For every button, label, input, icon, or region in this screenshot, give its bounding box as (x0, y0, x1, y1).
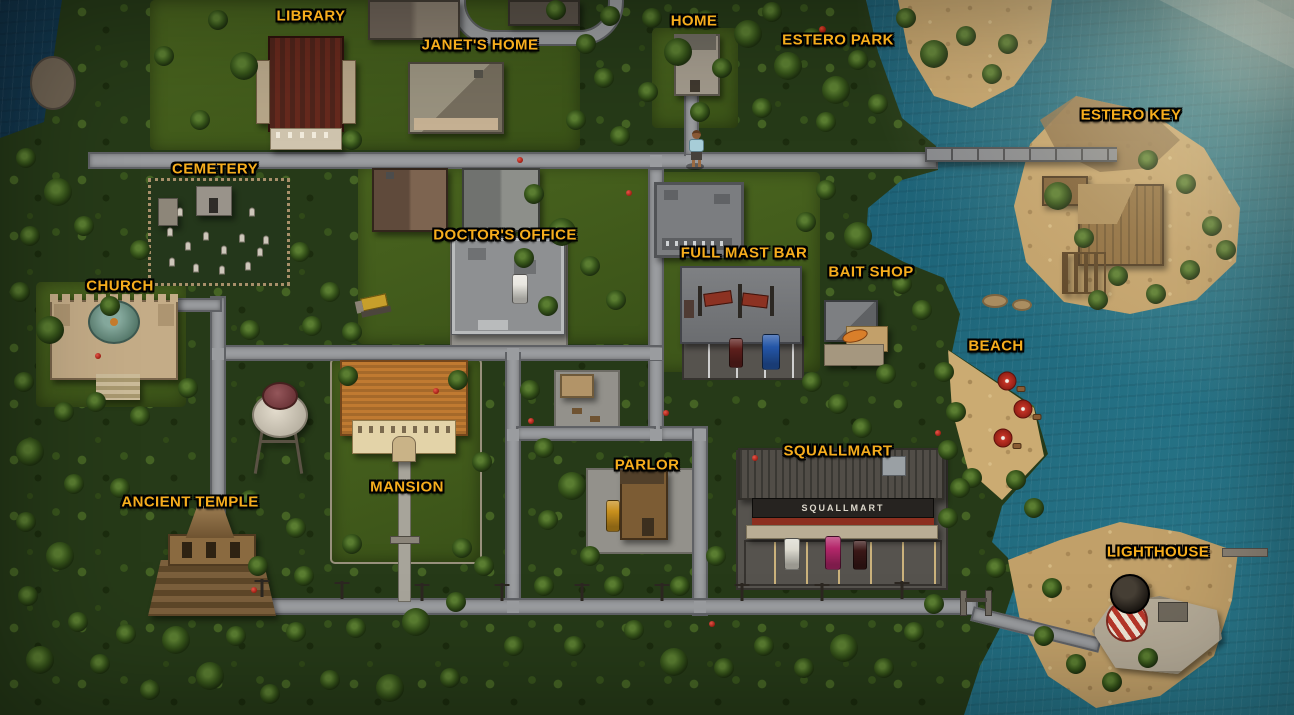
palm-tree (208, 10, 228, 30)
palm-tree (342, 322, 362, 342)
hibiscus-flower (626, 190, 632, 196)
hibiscus-flower (935, 430, 941, 436)
map-location-beach[interactable]: BEACH (968, 338, 1023, 355)
palm-tree (802, 372, 822, 392)
palm-tree (1088, 290, 1108, 310)
palm-tree (774, 52, 802, 80)
palm-tree (248, 556, 268, 576)
building-top-house-b[interactable] (508, 0, 580, 26)
palm-tree (260, 684, 280, 704)
palm-tree (546, 0, 566, 20)
palm-tree (16, 438, 44, 466)
player-marker (684, 130, 708, 172)
palm-tree (178, 378, 198, 398)
palm-tree (714, 658, 734, 678)
palm-tree (934, 362, 954, 382)
car-squallmart-pink (825, 536, 841, 570)
palm-tree (36, 316, 64, 344)
palm-tree (564, 636, 584, 656)
palm-tree (446, 592, 466, 612)
palm-tree (796, 212, 816, 232)
palm-tree (822, 76, 850, 104)
car-squallmart-white (784, 538, 800, 570)
palm-tree (896, 8, 916, 28)
map-location-church[interactable]: CHURCH (86, 278, 153, 295)
tombstone (203, 232, 209, 241)
palm-tree (116, 624, 136, 644)
power-pole (501, 583, 504, 601)
power-pole (261, 579, 264, 597)
map-location-doctors-office[interactable]: DOCTOR'S OFFICE (433, 227, 576, 244)
power-pole (741, 583, 744, 601)
palm-tree (912, 300, 932, 320)
center-avenue (505, 352, 521, 614)
building-squallmart[interactable]: SQUALLMART (738, 448, 944, 540)
palm-tree (1176, 174, 1196, 194)
palm-tree (90, 654, 110, 674)
palm-tree (46, 542, 74, 570)
palm-tree (538, 510, 558, 530)
power-pole (821, 583, 824, 601)
shore-rocks (30, 56, 76, 110)
palm-tree (514, 248, 534, 268)
palm-tree (876, 364, 896, 384)
palm-tree (1202, 216, 1222, 236)
tombstone (245, 262, 251, 271)
palm-tree (538, 296, 558, 316)
palm-tree (610, 126, 630, 146)
palm-tree (734, 20, 762, 48)
palm-tree (1102, 672, 1122, 692)
palm-tree (816, 112, 836, 132)
palm-tree (130, 240, 150, 260)
road-junction (212, 348, 224, 360)
picnic-table (590, 416, 600, 422)
tombstone (249, 208, 255, 217)
van-parlor-yellow (606, 500, 620, 532)
building-full-mast-bar[interactable] (680, 266, 802, 344)
palm-tree (600, 6, 620, 26)
palm-tree (848, 50, 868, 70)
picnic-table (572, 408, 582, 414)
palm-tree (1066, 654, 1086, 674)
palm-tree (1108, 266, 1128, 286)
mausoleum (196, 186, 232, 216)
tombstone (239, 234, 245, 243)
palm-tree (1006, 470, 1026, 490)
palm-tree (100, 296, 120, 316)
palm-tree (670, 576, 690, 596)
palm-tree (852, 418, 872, 438)
palm-tree (302, 316, 322, 336)
hibiscus-flower (433, 388, 439, 394)
beach-chair (1033, 414, 1042, 420)
palm-tree (690, 102, 710, 122)
palm-tree (130, 406, 150, 426)
palm-tree (576, 34, 596, 54)
palm-tree (376, 674, 404, 702)
pier (1222, 548, 1268, 557)
road-junction (507, 348, 519, 360)
palm-tree (642, 8, 662, 28)
beach-chair (1013, 443, 1022, 449)
palm-tree (26, 646, 54, 674)
palm-tree (286, 622, 306, 642)
palm-tree (1042, 578, 1062, 598)
hibiscus-flower (709, 621, 715, 627)
tombstone (219, 266, 225, 275)
tombstone (193, 264, 199, 273)
building-library[interactable] (256, 36, 356, 150)
map-location-ancient-temple[interactable]: ANCIENT TEMPLE (121, 494, 258, 511)
palm-tree (752, 98, 772, 118)
power-pole (581, 583, 584, 601)
hibiscus-flower (663, 410, 669, 416)
road-junction (507, 429, 519, 441)
map-location-bait-shop[interactable]: BAIT SHOP (828, 264, 913, 281)
power-pole (661, 583, 664, 601)
palm-tree (402, 608, 430, 636)
power-pole (341, 581, 344, 599)
palm-tree (294, 566, 314, 586)
car-doctors-office (512, 274, 528, 304)
palm-tree (346, 618, 366, 638)
beach-umbrella (998, 372, 1017, 391)
palm-tree (504, 636, 524, 656)
road-junction (694, 429, 706, 441)
hibiscus-flower (517, 157, 523, 163)
palm-tree (844, 222, 872, 250)
beach-umbrella (1014, 400, 1033, 419)
palm-tree (16, 512, 36, 532)
palm-tree (320, 670, 340, 690)
palm-tree (594, 68, 614, 88)
car-squallmart-dark (853, 540, 867, 570)
palm-tree (1024, 498, 1044, 518)
building-top-house-a[interactable] (368, 0, 460, 40)
palm-tree (868, 94, 888, 114)
palm-tree (64, 474, 84, 494)
palm-tree (638, 82, 658, 102)
palm-tree (68, 612, 88, 632)
palm-tree (946, 402, 966, 422)
squallmart-parking (744, 540, 942, 586)
palm-tree (982, 64, 1002, 84)
palm-tree (44, 178, 72, 206)
palm-tree (320, 282, 340, 302)
beach-umbrella (994, 429, 1013, 448)
map-location-estero-park[interactable]: ESTERO PARK (782, 32, 894, 49)
palm-tree (580, 546, 600, 566)
palm-tree (754, 636, 774, 656)
building-house-west[interactable] (372, 168, 448, 232)
palm-tree (706, 546, 726, 566)
squallmart-sign-text: SQUALLMART (802, 503, 885, 513)
palm-tree (664, 38, 692, 66)
palm-tree (1216, 240, 1236, 260)
palm-tree (816, 180, 836, 200)
beach-chair (1017, 386, 1026, 392)
palm-tree (534, 576, 554, 596)
palm-tree (660, 648, 688, 676)
palm-tree (20, 226, 40, 246)
palm-tree (1034, 626, 1054, 646)
palm-tree (54, 402, 74, 422)
map-location-library[interactable]: LIBRARY (277, 8, 346, 25)
truck-bar-blue (762, 334, 780, 370)
palm-tree (712, 58, 732, 78)
water-tower (248, 382, 312, 478)
palm-tree (140, 680, 160, 700)
crypt (158, 198, 178, 226)
road-junction (694, 601, 706, 613)
palm-tree (938, 440, 958, 460)
hibiscus-flower (95, 353, 101, 359)
palm-tree (998, 34, 1018, 54)
palm-tree (1146, 284, 1166, 304)
sea-rock (982, 294, 1008, 308)
palm-tree (1180, 260, 1200, 280)
palm-tree (196, 662, 224, 690)
hibiscus-flower (528, 418, 534, 424)
palm-tree (240, 320, 260, 340)
palm-tree (472, 452, 492, 472)
south-road (210, 598, 978, 615)
tombstone (221, 246, 227, 255)
palm-tree (18, 586, 38, 606)
squallmart-sign: SQUALLMART (752, 498, 934, 518)
palm-tree (624, 620, 644, 640)
palm-tree (956, 26, 976, 46)
palm-tree (474, 556, 494, 576)
picnic-street (516, 426, 656, 441)
palm-tree (342, 534, 362, 554)
palm-tree (580, 256, 600, 276)
power-pole (421, 583, 424, 601)
building-doctors-office[interactable] (452, 238, 564, 334)
tombstone (185, 242, 191, 251)
tombstone (257, 248, 263, 257)
palm-tree (440, 668, 460, 688)
doctors-street (210, 345, 664, 361)
hibiscus-flower (251, 587, 257, 593)
palm-tree (190, 110, 210, 130)
palm-tree (604, 576, 624, 596)
squallmart-gate[interactable] (960, 588, 992, 618)
map-location-squallmart[interactable]: SQUALLMART (784, 443, 893, 460)
map-location-full-mast-bar[interactable]: FULL MAST BAR (681, 245, 808, 262)
road-junction (650, 429, 662, 441)
palm-tree (986, 558, 1006, 578)
palm-tree (16, 148, 36, 168)
palm-tree (924, 594, 944, 614)
map-location-estero-key[interactable]: ESTERO KEY (1081, 107, 1182, 124)
palm-tree (874, 658, 894, 678)
palm-tree (830, 634, 858, 662)
estero-key-bridge (925, 147, 1117, 162)
palm-tree (520, 380, 540, 400)
palm-tree (290, 242, 310, 262)
palm-tree (74, 216, 94, 236)
building-parlor[interactable] (620, 470, 668, 540)
power-pole (901, 581, 904, 599)
palm-tree (448, 370, 468, 390)
road-junction (650, 155, 662, 167)
palm-tree (286, 518, 306, 538)
church-lane (172, 298, 222, 312)
tombstone (177, 208, 183, 217)
palm-tree (1044, 182, 1072, 210)
hibiscus-flower (752, 455, 758, 461)
palm-tree (162, 626, 190, 654)
map-location-parlor[interactable]: PARLOR (615, 457, 680, 474)
palm-tree (226, 626, 246, 646)
palm-tree (452, 538, 472, 558)
palm-tree (86, 392, 106, 412)
map-location-home[interactable]: HOME (671, 13, 718, 30)
palm-tree (1138, 648, 1158, 668)
road-junction (650, 348, 662, 360)
palm-tree (10, 282, 30, 302)
palm-tree (1138, 150, 1158, 170)
palm-tree (14, 372, 34, 392)
palm-tree (1074, 228, 1094, 248)
palm-tree (950, 478, 970, 498)
road-junction (507, 601, 519, 613)
palm-tree (938, 508, 958, 528)
map-location-mansion[interactable]: MANSION (370, 479, 444, 496)
palm-tree (904, 622, 924, 642)
building-bait-shop[interactable] (820, 296, 892, 370)
tombstone (263, 236, 269, 245)
map-location-cemetery[interactable]: CEMETERY (172, 161, 258, 178)
palm-tree (762, 2, 782, 22)
mansion-gate[interactable] (390, 536, 420, 544)
palm-tree (534, 438, 554, 458)
palm-tree (342, 130, 362, 150)
tombstone (167, 228, 173, 237)
map-location-lighthouse[interactable]: LIGHTHOUSE (1107, 544, 1209, 561)
palm-tree (794, 658, 814, 678)
palm-tree (828, 394, 848, 414)
car-bar-red (729, 338, 743, 368)
town-map: SQUALLMART (0, 0, 1294, 715)
palm-tree (606, 290, 626, 310)
palm-tree (230, 52, 258, 80)
palm-tree (524, 184, 544, 204)
parlor-avenue (692, 426, 708, 616)
building-janets-home[interactable] (408, 62, 504, 134)
palm-tree (154, 46, 174, 66)
picnic-shelter (560, 374, 594, 398)
palm-tree (558, 472, 586, 500)
map-location-janets-home[interactable]: JANET'S HOME (422, 37, 539, 54)
palm-tree (338, 366, 358, 386)
palm-tree (920, 40, 948, 68)
palm-tree (566, 110, 586, 130)
sea-rock (1012, 299, 1032, 311)
tombstone (169, 258, 175, 267)
